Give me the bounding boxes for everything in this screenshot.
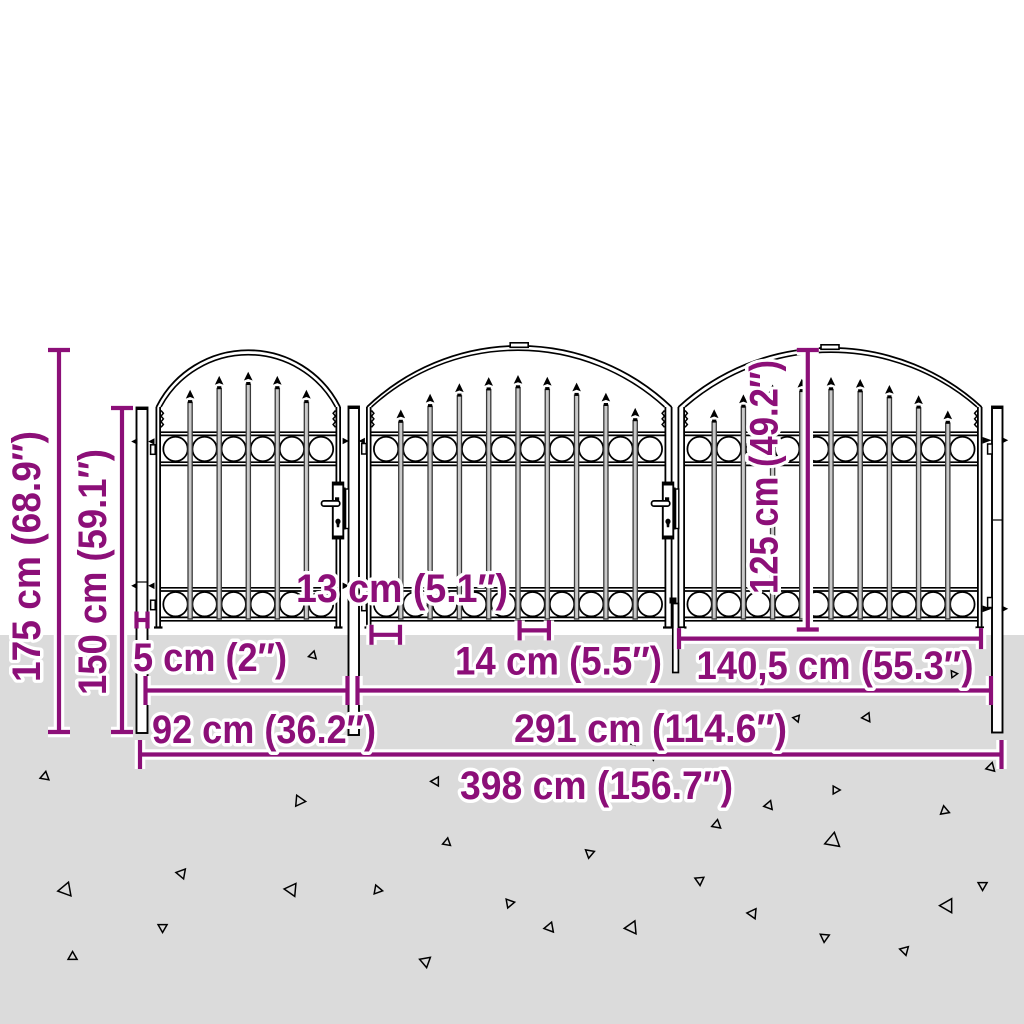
svg-text:125 cm (49.2″): 125 cm (49.2″): [742, 360, 786, 594]
svg-text:140,5 cm (55.3″): 140,5 cm (55.3″): [697, 644, 974, 688]
svg-text:13 cm (5.1″): 13 cm (5.1″): [296, 567, 508, 611]
svg-text:398 cm (156.7″): 398 cm (156.7″): [460, 764, 733, 808]
svg-text:150 cm (59.1″): 150 cm (59.1″): [71, 449, 115, 695]
svg-text:5 cm (2″): 5 cm (2″): [133, 636, 287, 680]
svg-text:92 cm (36.2″): 92 cm (36.2″): [152, 708, 376, 752]
svg-text:14 cm (5.5″): 14 cm (5.5″): [455, 640, 662, 684]
svg-text:291 cm (114.6″): 291 cm (114.6″): [514, 707, 787, 751]
svg-text:175 cm (68.9″): 175 cm (68.9″): [5, 431, 49, 682]
